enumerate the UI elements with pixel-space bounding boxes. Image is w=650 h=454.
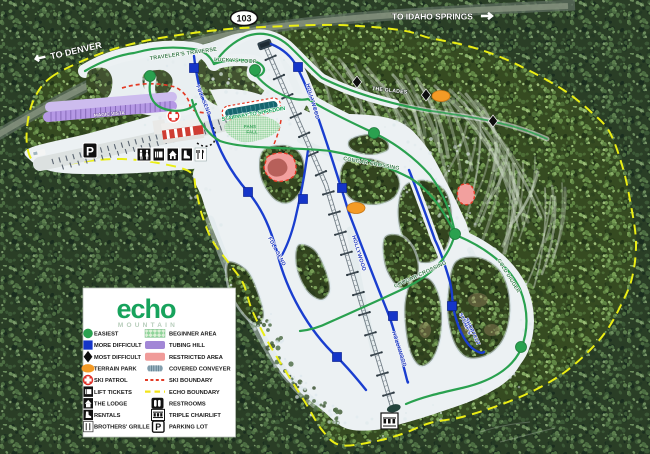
svg-text:TRIPLE CHAIRLIFT: TRIPLE CHAIRLIFT [169, 413, 221, 419]
svg-text:SKI PATROL: SKI PATROL [94, 378, 128, 384]
svg-text:TUBING HILL: TUBING HILL [169, 343, 206, 349]
svg-text:BEGINNER AREA: BEGINNER AREA [169, 332, 217, 338]
svg-text:echo: echo [116, 294, 176, 324]
svg-text:RESTROOMS: RESTROOMS [169, 401, 206, 407]
svg-text:RENTALS: RENTALS [94, 413, 121, 419]
svg-text:SKI BOUNDARY: SKI BOUNDARY [169, 378, 213, 384]
svg-text:RESTRICTED AREA: RESTRICTED AREA [169, 355, 223, 361]
svg-text:COVERED CONVEYER: COVERED CONVEYER [169, 366, 231, 372]
svg-text:BROTHERS' GRILLE: BROTHERS' GRILLE [94, 425, 150, 431]
svg-text:103: 103 [236, 14, 251, 24]
svg-text:PARKING LOT: PARKING LOT [169, 425, 208, 431]
svg-text:ECHO BOUNDARY: ECHO BOUNDARY [169, 390, 220, 396]
svg-text:TERRAIN PARK: TERRAIN PARK [94, 366, 137, 372]
svg-text:FALL: FALL [246, 130, 257, 135]
svg-text:P: P [155, 422, 161, 432]
svg-text:THE LODGE: THE LODGE [94, 401, 127, 407]
svg-text:MOST DIFFICULT: MOST DIFFICULT [94, 355, 141, 361]
svg-text:TO IDAHO SPRINGS: TO IDAHO SPRINGS [392, 12, 473, 22]
svg-text:FANS: FANS [244, 124, 256, 129]
svg-text:LIFT TICKETS: LIFT TICKETS [94, 390, 132, 396]
svg-text:MORE DIFFICULT: MORE DIFFICULT [94, 343, 142, 349]
svg-text:EASIEST: EASIEST [94, 332, 119, 338]
svg-text:P: P [86, 145, 94, 159]
svg-text:MOUNTAIN: MOUNTAIN [118, 322, 178, 329]
